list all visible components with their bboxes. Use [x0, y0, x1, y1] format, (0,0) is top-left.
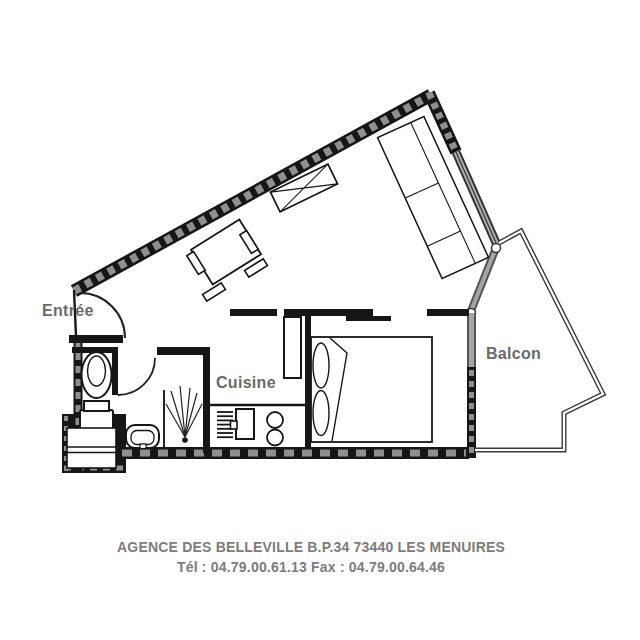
double-bed-icon: [311, 337, 432, 442]
bathroom-cabinet-icon: [67, 428, 116, 468]
shower-icon: [164, 386, 202, 449]
floor-plan: Entrée Cuisine Balcon AGENCE DES BELLEVI…: [0, 0, 640, 640]
hob-burner-icon: [267, 430, 283, 446]
agency-footer-line1: AGENCE DES BELLEVILLE B.P.34 73440 LES M…: [0, 539, 622, 555]
hob-burner-icon: [267, 412, 283, 428]
bathroom-door-icon: [118, 358, 155, 395]
toilet-icon: [80, 352, 113, 432]
kitchen-sink-icon: [231, 409, 255, 439]
balcony-outline: [475, 231, 603, 450]
pillow-icon: [313, 391, 329, 436]
room-label-cuisine: Cuisine: [216, 374, 276, 392]
pillow-icon: [313, 343, 329, 388]
washbasin-icon: [126, 425, 159, 449]
room-label-entree: Entrée: [42, 302, 94, 320]
agency-footer-line2: Tél : 04.79.00.61.13 Fax : 04.79.00.64.4…: [0, 559, 622, 575]
fridge-icon: [284, 317, 301, 378]
chair-icon: [203, 283, 226, 301]
room-label-balcon: Balcon: [486, 345, 541, 363]
